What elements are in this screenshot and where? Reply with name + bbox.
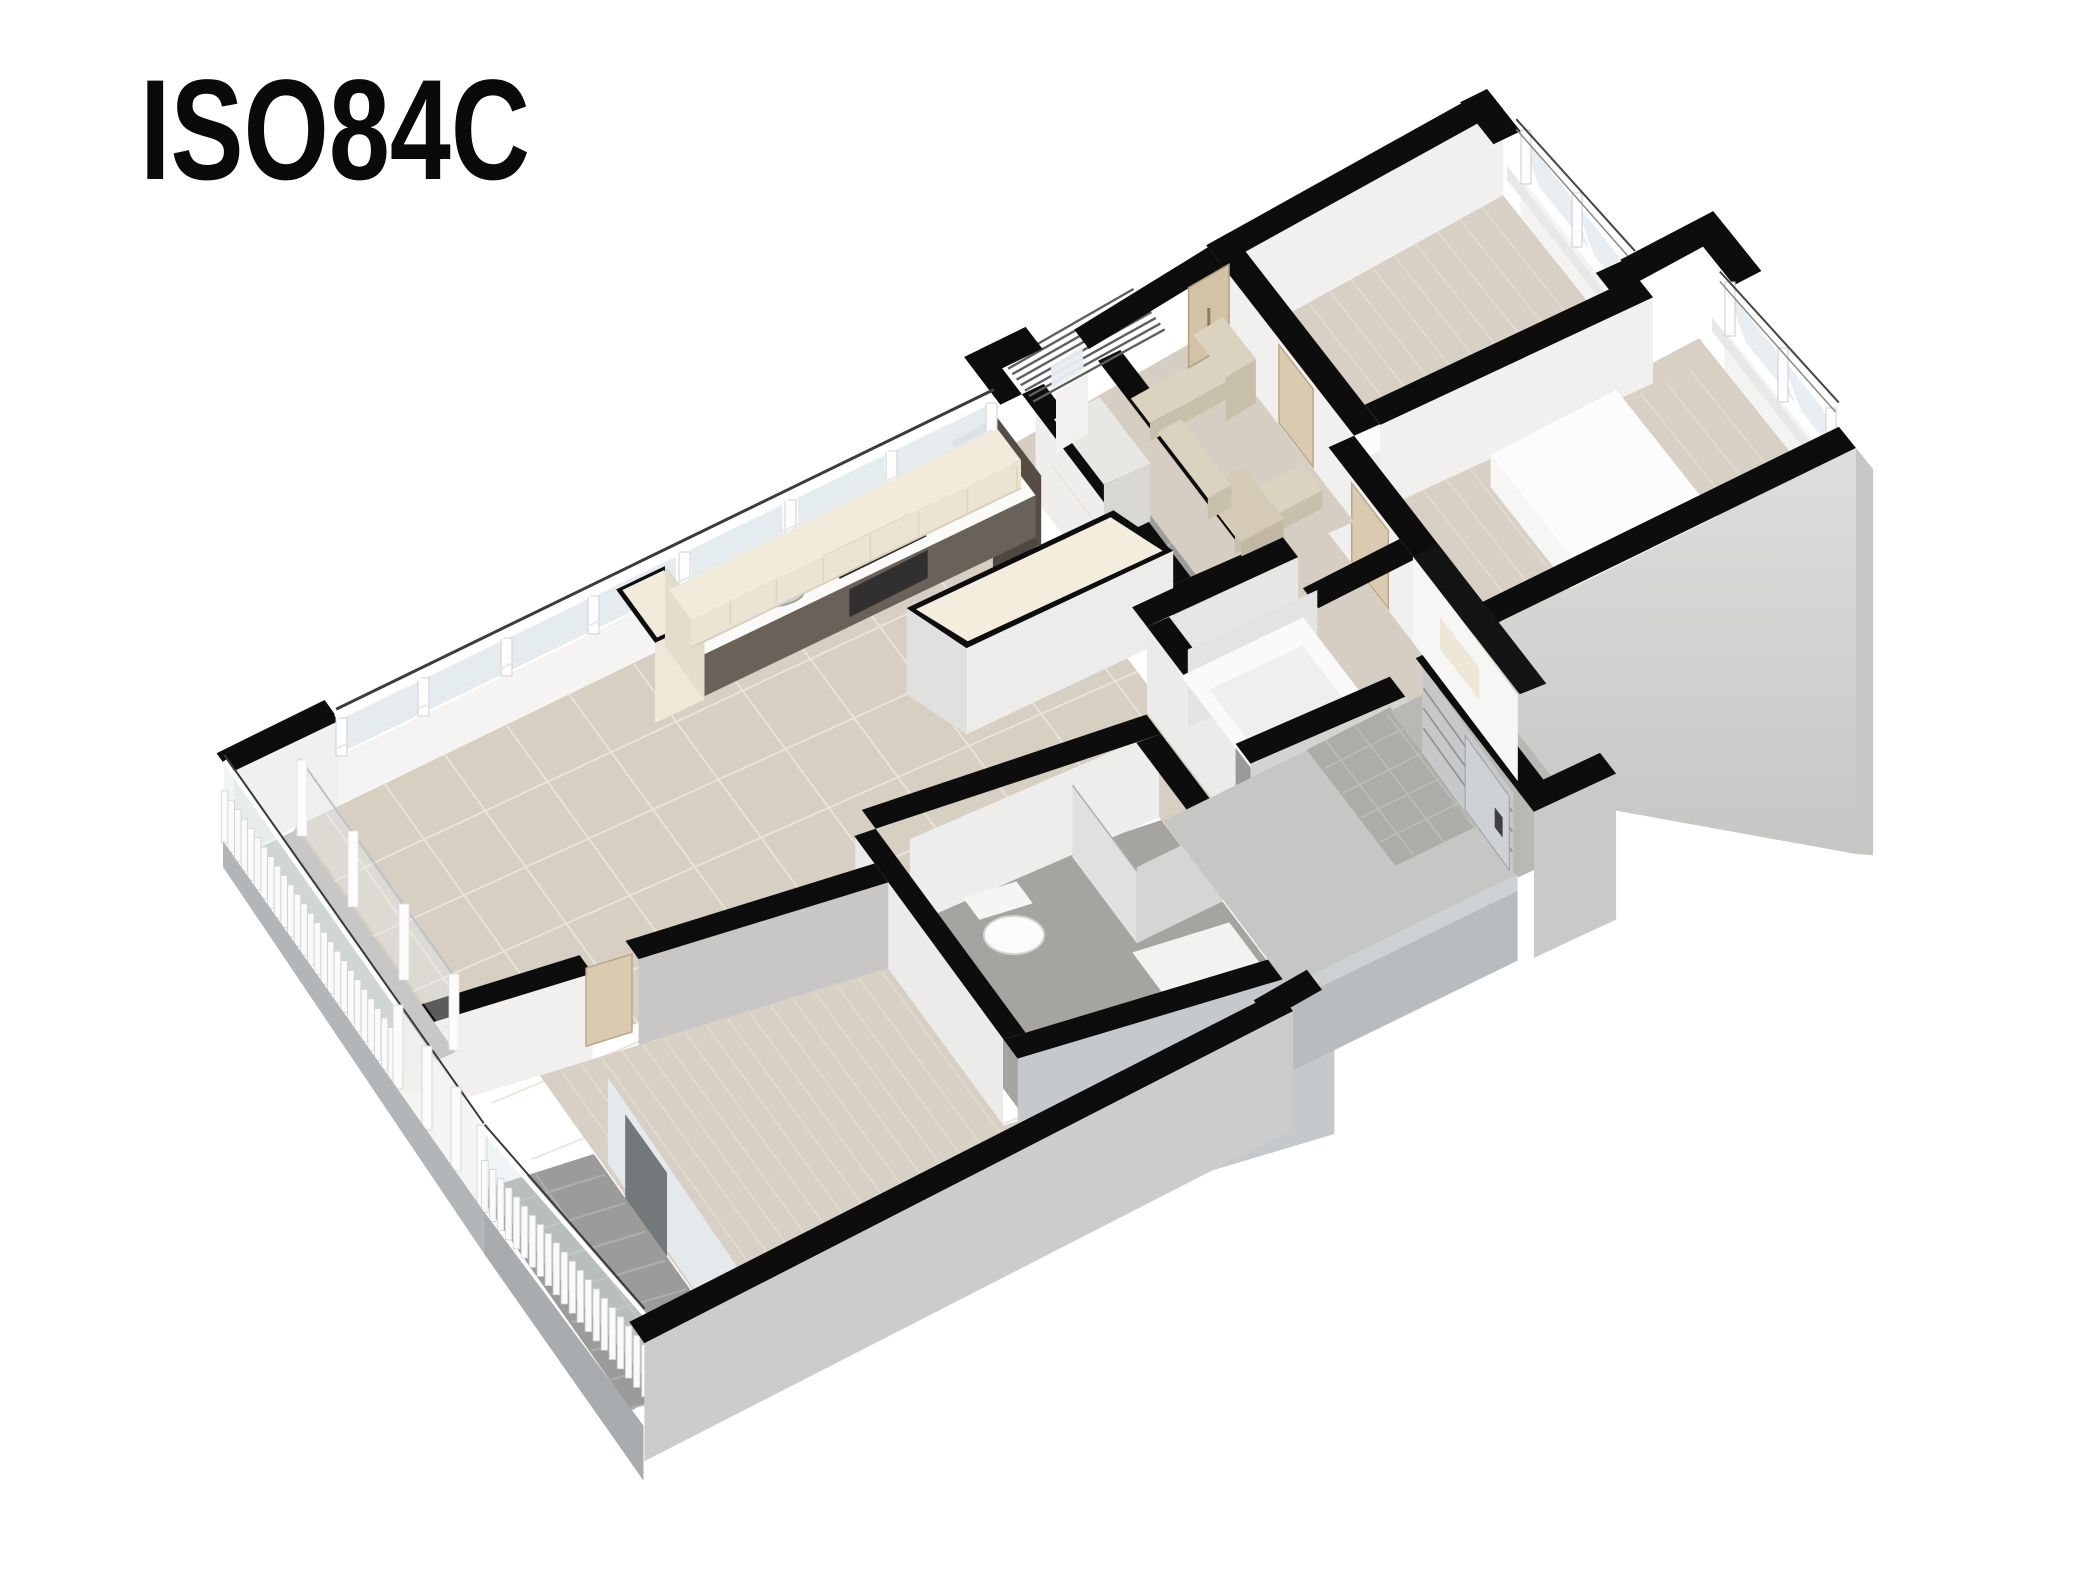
svg-text:ISO84C: ISO84C <box>140 51 530 210</box>
